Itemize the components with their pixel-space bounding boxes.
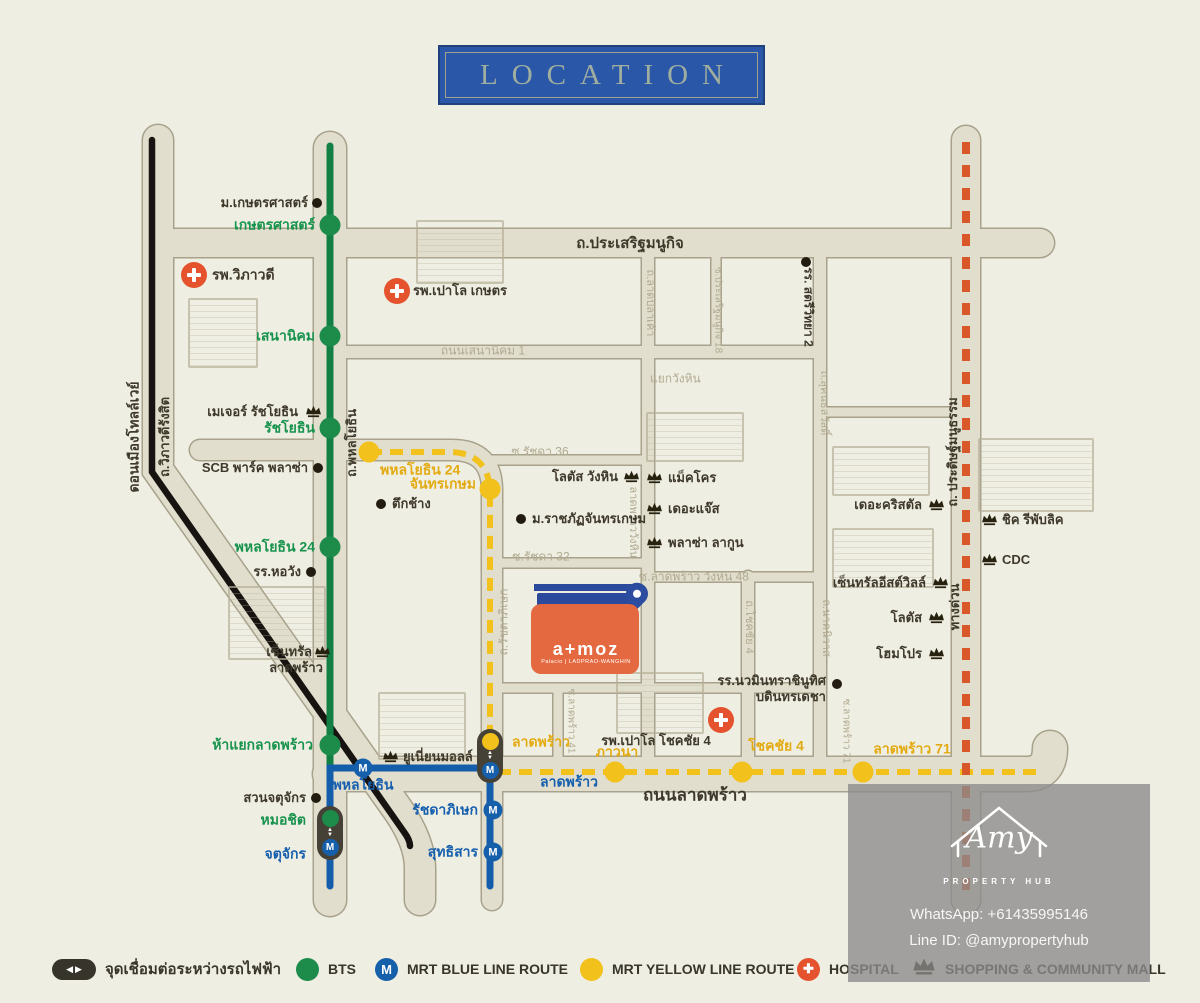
poi-kasetsart-university-icon	[312, 198, 322, 208]
map-label: พลาซ่า ลากูน	[668, 536, 744, 550]
map-label: เซ็นทรัลอีสต์วิลล์	[833, 576, 926, 590]
map-label: เมเจอร์ รัชโยธิน	[207, 405, 298, 419]
map-label: ซ.ลาดพร้าว 71	[841, 699, 852, 764]
map-label: ถ.รัชดาภิเษก	[497, 589, 510, 656]
atmoz-subtitle: Palacio | LADPRAO-WANGHIN	[527, 659, 645, 665]
map-label: พหลโยธิน	[333, 777, 394, 792]
poi-bodindecha-school-icon	[832, 679, 842, 689]
interchange-latphrao-icon: ▲▼M	[477, 729, 503, 783]
mall-major-ratchayothin-icon	[304, 404, 322, 418]
map-label: ซ.ประเสริฐมนูกิจ 18	[713, 267, 724, 353]
map-label: รร.หอวัง	[253, 565, 301, 579]
poi-scb-park-plaza-icon	[313, 463, 323, 473]
mall-homepro-icon	[927, 646, 945, 660]
watermark-line-id: Line ID: @amypropertyhub	[909, 928, 1088, 954]
mrt-yellow-station-phawana-icon	[605, 762, 626, 783]
watermark-contacts: WhatsApp: +61435995146 Line ID: @amyprop…	[909, 902, 1088, 954]
bts-station-phahonyothin24-icon	[320, 537, 341, 558]
map-label: CDC	[1002, 553, 1030, 567]
map-label: เสนานิคม	[256, 328, 315, 343]
poi-satriwitthaya2-school-icon	[801, 257, 811, 267]
poi-elephant-tower-icon	[376, 499, 386, 509]
map-label: ถ.พหลโยธิน	[345, 409, 359, 477]
map-label: ตึกช้าง	[392, 497, 431, 511]
legend-bts-label: BTS	[328, 961, 356, 977]
mall-plaza-lagoon-icon	[645, 535, 663, 549]
mall-chic-republic-icon	[980, 512, 998, 526]
map-label: ถ.นาคนิวาส	[820, 599, 832, 656]
map-label: รัชดาภิเษก	[412, 802, 478, 817]
map-label: ลาดพร้าว	[269, 661, 323, 675]
legend-interchange-label: จุดเชื่อมต่อระหว่างรถไฟฟ้า	[105, 957, 281, 981]
map-label: จันทรเกษม	[410, 476, 476, 491]
map-label: รพ.เปาโล โชคชัย 4	[601, 734, 711, 748]
poi-horwang-school-icon	[306, 567, 316, 577]
atmoz-project-card: a+moz Palacio | LADPRAO-WANGHIN	[527, 556, 645, 678]
map-label: ถ.สุคนธสวัสดิ์	[818, 371, 830, 436]
map-label: ดอนเมืองโทลล์เวย์	[126, 381, 141, 492]
legend-mrt-yellow-label: MRT YELLOW LINE ROUTE	[612, 961, 795, 977]
map-label: จตุจักร	[265, 846, 307, 861]
watermark-logo: Amy PROPERTY HUB	[934, 794, 1064, 886]
mall-cdc-icon	[980, 552, 998, 566]
map-label: ชิค รีพับลิค	[1002, 513, 1064, 527]
map-label: ถ.ลาดปลาเค้า	[644, 270, 656, 337]
legend-mrt-yellow: MRT YELLOW LINE ROUTE	[580, 946, 795, 992]
mrt-yellow-station-chankasem-icon	[480, 479, 501, 500]
poi-chatuchak-park-icon	[311, 793, 321, 803]
watermark-brand: Amy	[965, 821, 1032, 856]
map-label: สุทธิสาร	[428, 844, 478, 859]
mall-makro-icon	[645, 470, 663, 484]
map-label: รพ.วิภาวดี	[212, 267, 275, 282]
mall-central-eastville-icon	[931, 575, 949, 589]
legend-interchange: ◀▶ จุดเชื่อมต่อระหว่างรถไฟฟ้า	[52, 946, 281, 992]
map-label: เดอะคริสตัล	[854, 498, 922, 512]
map-label: ซ.รัชดา 36	[511, 445, 568, 458]
bts-station-hayaeklatphrao-icon	[320, 735, 341, 756]
map-label: รพ.เปาโล เกษตร	[413, 284, 507, 298]
mrt-blue-circle-icon: M	[375, 958, 398, 981]
map-label: เดอะแจ๊ส	[668, 502, 720, 516]
mrt-station-ratchadaphisek-icon: M	[484, 801, 503, 820]
map-label: ถ.โชคชัย 4	[743, 600, 755, 654]
mrt-yellow-station-latphrao71-icon	[853, 762, 874, 783]
map-label: โลตัส วังหิน	[552, 470, 618, 484]
mall-lotus-wanghin-icon	[622, 469, 640, 483]
atmoz-brand-logo: a+moz	[527, 640, 645, 658]
title-box: LOCATION	[438, 45, 765, 105]
map-label: โฮมโปร	[876, 647, 922, 661]
poi-chandrakasem-university-icon	[516, 514, 526, 524]
mall-lotus-icon	[927, 610, 945, 624]
bts-station-ratchayothin-icon	[320, 418, 341, 439]
mall-union-mall-icon	[381, 749, 399, 763]
hospital-paolo-kaset-icon	[384, 278, 410, 304]
mrt-station-phahonyothin-icon: M	[354, 759, 373, 778]
map-label: แม็คโคร	[668, 471, 716, 485]
legend-bts: BTS	[296, 946, 356, 992]
hospital-cross-icon: ✚	[797, 958, 820, 981]
bts-station-senanikhom-icon	[320, 326, 341, 347]
map-label: ลาดพร้าว	[540, 774, 598, 789]
map-label: รร. สตรีวิทยา 2	[801, 267, 814, 347]
mall-the-jas-icon	[645, 501, 663, 515]
map-label: ถ.ประเสริฐมนูกิจ	[576, 236, 684, 253]
mrt-yellow-station-phahonyothin24-icon	[359, 442, 380, 463]
map-label: หมอชิต	[261, 812, 306, 827]
mrt-yellow-circle-icon	[580, 958, 603, 981]
map-label: ถ.วิภาวดีรังสิต	[158, 397, 172, 477]
map-label: แยกวังหิน	[650, 372, 701, 385]
map-label: พหลโยธิน 24	[235, 539, 315, 554]
map-label: รร.นวมินทราชินูทิศ	[717, 674, 826, 688]
hospital-vibhavadi-icon	[181, 262, 207, 288]
location-map-page: ถ.ประเสริฐมนูกิจถนนลาดพร้าวถนนเสนานิคม 1…	[0, 0, 1200, 1003]
watermark-tagline: PROPERTY HUB	[934, 877, 1064, 886]
map-label: โชคชัย 4	[748, 738, 804, 753]
map-label: เกษตรศาสตร์	[234, 217, 315, 232]
watermark-overlay: Amy PROPERTY HUB WhatsApp: +61435995146 …	[848, 784, 1150, 982]
map-label: ถนนเสนานิคม 1	[441, 344, 525, 357]
page-title: LOCATION	[466, 59, 737, 92]
mall-central-ladprao-icon	[313, 644, 331, 658]
map-label: ถ. ประดิษฐ์มนูธรรม	[946, 397, 960, 506]
map-label: ห้าแยกลาดพร้าว	[212, 737, 313, 752]
legend-mrt-blue-label: MRT BLUE LINE ROUTE	[407, 961, 568, 977]
map-label: ม.เกษตรศาสตร์	[221, 196, 308, 210]
map-label: ถนนลาดพร้าว	[643, 787, 747, 806]
map-label: ลาดพร้าว 71	[873, 741, 950, 756]
map-label: ทางด่วน	[948, 584, 962, 631]
mrt-yellow-station-chokchai4-icon	[732, 762, 753, 783]
mall-the-crystal-icon	[927, 497, 945, 511]
map-label: ยูเนี่ยนมอลล์	[403, 750, 473, 764]
mrt-station-sutthisan-icon: M	[484, 843, 503, 862]
map-label: SCB พาร์ค พลาซ่า	[202, 461, 308, 475]
bts-station-kasetsart-icon	[320, 215, 341, 236]
map-label: เซ็นทรัล	[266, 645, 312, 659]
map-label: รัชโยธิน	[264, 420, 315, 435]
title-frame: LOCATION	[445, 52, 758, 98]
interchange-pill-icon: ◀▶	[52, 959, 96, 980]
hospital-paolo-chokchai4-icon	[708, 707, 734, 733]
map-label: บดินทรเดชา	[756, 690, 826, 704]
map-label: ลาดพร้าว	[512, 734, 570, 749]
legend-mrt-blue: M MRT BLUE LINE ROUTE	[375, 946, 568, 992]
map-label: โลตัส	[891, 611, 922, 625]
bts-circle-icon	[296, 958, 319, 981]
watermark-whatsapp: WhatsApp: +61435995146	[909, 902, 1088, 928]
map-label: สวนจตุจักร	[243, 791, 306, 805]
interchange-mochit-chatuchak-icon: ▲▼M	[317, 806, 343, 860]
map-label: ซ.ลาดพร้าว วังหิน 48	[639, 570, 749, 583]
map-label: ม.ราชภัฏจันทรเกษม	[532, 512, 646, 526]
